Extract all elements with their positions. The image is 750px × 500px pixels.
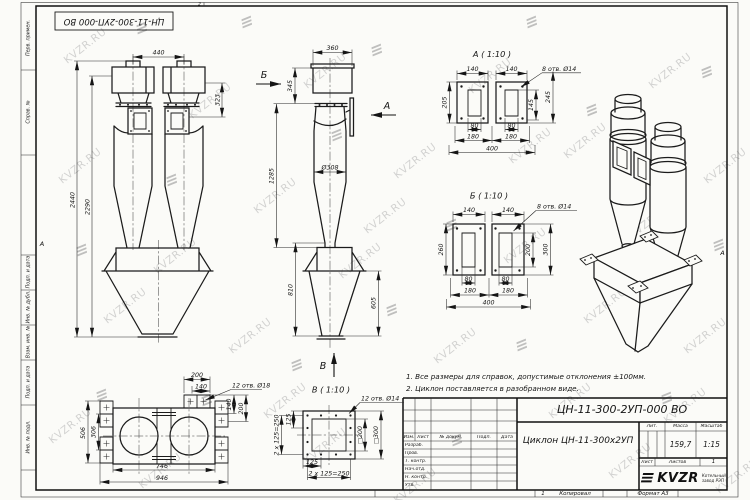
view-v-title: В ( 1:10 ) (312, 385, 350, 395)
dim-v-125-bottom: 125 (306, 459, 318, 466)
dim-p-140-top: 140 (195, 384, 207, 391)
col-izm: Изм. (403, 435, 415, 440)
isometric-view (580, 95, 702, 353)
row-razrab: Разраб. (405, 443, 431, 448)
dim-v-250-bottom: 2 х 125=250 (308, 471, 349, 478)
dim-440: 440 (152, 50, 164, 57)
title-product-name: Циклон ЦН-11-300х2УП (519, 436, 637, 446)
margin-label-sprav: Справ. № (26, 100, 31, 123)
company-logo: ≡ KVZR Котельный завод РЭП (640, 467, 726, 489)
fold-mark-right: А (719, 249, 724, 257)
dim-b-200: 200 (525, 244, 532, 256)
plan-view: 200 140 12 отв. Ø18 506 306 140 200 746 … (80, 372, 270, 485)
margin-label-pd2: Подп. и дата (26, 366, 31, 399)
dim-p-746: 746 (156, 463, 168, 470)
row-prov: Пров. (405, 451, 431, 456)
col-doc: № докум. (431, 435, 471, 440)
dim-a-80-left: 80 (470, 123, 478, 130)
margin-label-vzam: Взам. инв. № (26, 326, 31, 359)
view-a-title: А ( 1:10 ) (472, 49, 511, 59)
dim-323: 323 (215, 94, 222, 106)
dim-v-sq200: □200 (357, 426, 364, 444)
view-v: В ( 1:10 ) 12 отв. Ø14 125 2 х 125=250 □… (274, 385, 405, 481)
spring-icon: ≡ (638, 470, 656, 487)
dim-b-300: 300 (543, 243, 550, 255)
margin-label-inv-dub: Инв. № дубл. (26, 291, 31, 324)
dim-345: 345 (287, 80, 294, 92)
dim-a-180-right: 180 (505, 134, 517, 141)
view-b: Б ( 1:10 ) 140 140 8 отв. Ø14 260 200 (438, 191, 577, 310)
sheets-label: Листов (655, 460, 700, 465)
view-b-title: Б ( 1:10 ) (470, 191, 508, 201)
sheets-value: 1 (700, 459, 727, 465)
dim-2440: 2440 (70, 192, 77, 208)
holes-label-v: 12 отв. Ø14 (361, 395, 399, 403)
copy-number: 1 (538, 491, 548, 497)
zone-mark-top: 2 (198, 2, 201, 8)
view-arrow-a-label: А (383, 101, 391, 112)
dim-b-140-right: 140 (502, 207, 514, 214)
front-view: 440 2440 2290 323 (70, 50, 226, 345)
dim-p-200-top: 200 (191, 372, 203, 379)
dim-b-140-left: 140 (463, 207, 475, 214)
col-list: Лист (415, 435, 431, 440)
margin-label-pd1: Подп. и дата (26, 256, 31, 289)
fold-mark-left: А (39, 240, 44, 248)
row-nkontr: Н. контр. (405, 475, 431, 480)
holes-label-b: 8 отв. Ø14 (537, 203, 571, 211)
dim-p-200-right: 200 (238, 402, 245, 414)
dim-605: 605 (371, 297, 378, 309)
view-arrow-b-label: Б (261, 70, 268, 81)
margin-label-perv: Перв. примен. (26, 20, 31, 56)
mass-label: Масса (665, 424, 696, 429)
dim-a-205: 205 (442, 96, 449, 108)
dim-a-140-right: 140 (505, 66, 517, 73)
dim-p-140-right: 140 (226, 398, 233, 410)
side-view: 360 345 1285 Ø308 810 605 Б А В (256, 45, 396, 377)
dim-b-180-right: 180 (502, 288, 514, 295)
dim-a-180-left: 180 (467, 134, 479, 141)
format-label: Формат А3 (630, 491, 676, 497)
dim-v-125-left: 125 (286, 413, 293, 425)
logo-text: KVZR (657, 471, 699, 486)
dim-b-80-left: 80 (464, 276, 472, 283)
dim-b-80-right: 80 (501, 276, 509, 283)
holes-label-a: 8 отв. Ø14 (542, 65, 576, 73)
drawing-canvas: А А 2 440 2 (0, 0, 750, 500)
col-data: Дата (497, 435, 517, 440)
dim-p-946: 946 (156, 475, 168, 482)
dim-p-306: 306 (91, 426, 98, 438)
sheet-label: Лист (639, 460, 655, 465)
copied-label: Копировал (552, 491, 598, 497)
dim-b-260: 260 (438, 243, 445, 255)
scale-value: 1:15 (696, 431, 727, 458)
dim-2290: 2290 (85, 199, 92, 215)
dim-810: 810 (288, 284, 295, 296)
title-doc-number: ЦН-11-300-2УП-000 ВО (517, 399, 727, 420)
company-name: Котельный завод РЭП (702, 473, 726, 483)
dim-v-sq300: □300 (373, 426, 380, 444)
view-a: А ( 1:10 ) 140 140 8 отв. Ø14 205 145 (442, 49, 582, 155)
drawing-sheet: KVZR.RUKVZR.RUKVZR.RUKVZR.RUKVZR.RUKVZR.… (0, 0, 750, 500)
dim-a-80-right: 80 (507, 123, 515, 130)
dim-p-506: 506 (80, 427, 87, 439)
row-nach: Нач.отд. (405, 467, 431, 472)
mass-value: 159,7 (665, 431, 696, 458)
dim-b-400: 400 (482, 300, 494, 307)
holes-label-plan: 12 отв. Ø18 (232, 382, 270, 390)
margin-label-inv-podl: Инв. № подл. (26, 420, 31, 453)
view-arrow-v-label: В (320, 361, 327, 372)
dim-1285: 1285 (269, 168, 276, 184)
col-podp: Подп. (471, 435, 497, 440)
dim-308: Ø308 (321, 164, 339, 172)
dim-a-400: 400 (486, 146, 498, 153)
note-1: 1. Все размеры для справок, допустимые о… (406, 372, 646, 381)
dim-v-250-left: 2 х 125=250 (274, 414, 281, 455)
doc-number-top-box: ЦН-11-300-2УП-000 ВО (56, 12, 172, 30)
lit-label: Лит. (639, 424, 665, 429)
dim-a-245: 245 (545, 91, 552, 103)
dim-b-180-left: 180 (464, 288, 476, 295)
scale-label: Масштаб (696, 424, 727, 429)
row-tkontr: Т. контр. (405, 459, 431, 464)
dim-a-140-left: 140 (466, 66, 478, 73)
note-2: 2. Циклон поставляется в разобранном вид… (406, 384, 579, 393)
dim-360: 360 (326, 45, 338, 52)
dim-a-145: 145 (528, 99, 535, 111)
row-utv: Утв. (405, 483, 431, 488)
